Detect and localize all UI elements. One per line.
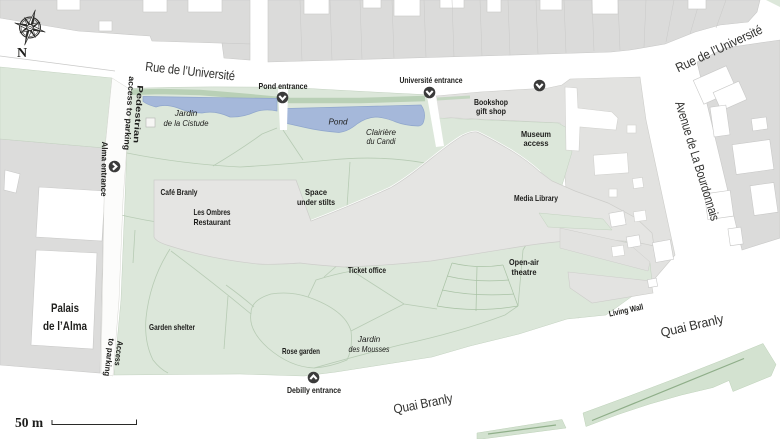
svg-text:gift shop: gift shop [476, 106, 506, 116]
svg-text:Space: Space [305, 187, 327, 197]
svg-text:Université entrance: Université entrance [400, 75, 463, 85]
svg-text:de la Cistude: de la Cistude [164, 118, 209, 128]
svg-text:du Candi: du Candi [367, 136, 397, 146]
svg-text:Ticket office: Ticket office [348, 265, 386, 275]
svg-text:Café Branly: Café Branly [161, 187, 198, 197]
svg-text:50 m: 50 m [15, 415, 44, 430]
svg-text:theatre: theatre [512, 267, 537, 277]
svg-text:Les Ombres: Les Ombres [194, 207, 231, 217]
svg-text:Debilly entrance: Debilly entrance [287, 385, 341, 395]
svg-text:under stilts: under stilts [297, 197, 335, 207]
svg-text:Jardin: Jardin [174, 108, 198, 118]
svg-text:Pond entrance: Pond entrance [259, 81, 308, 91]
svg-text:access: access [524, 138, 549, 148]
svg-text:Garden shelter: Garden shelter [149, 322, 196, 332]
svg-text:Alma entrance: Alma entrance [99, 141, 110, 197]
svg-text:Pond: Pond [329, 117, 348, 127]
svg-text:des Mousses: des Mousses [349, 344, 390, 354]
svg-text:N: N [17, 46, 27, 61]
svg-text:Restaurant: Restaurant [194, 217, 231, 227]
svg-text:de l’Alma: de l’Alma [43, 319, 87, 333]
svg-text:Palais: Palais [51, 301, 79, 315]
svg-text:Rose garden: Rose garden [282, 346, 320, 356]
svg-text:Media Library: Media Library [514, 193, 558, 203]
svg-text:Open-air: Open-air [509, 257, 540, 267]
svg-text:Jardin: Jardin [357, 334, 381, 344]
